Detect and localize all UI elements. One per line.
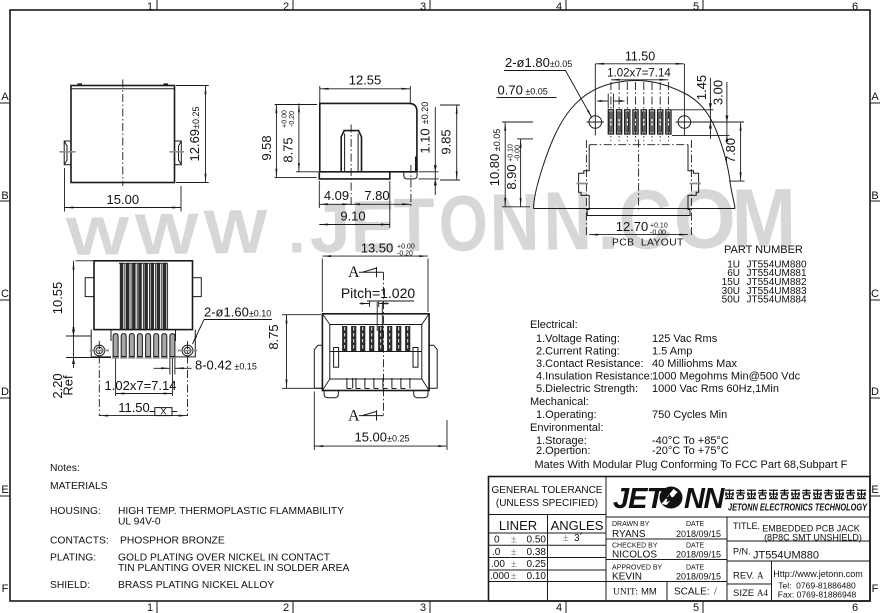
svg-text:8.75: 8.75 <box>266 324 281 349</box>
svg-text:0: 0 <box>494 535 500 546</box>
svg-text:+0.10: +0.10 <box>650 223 668 230</box>
svg-text:40 Milliohms Max: 40 Milliohms Max <box>652 358 737 370</box>
svg-text:TITLE.: TITLE. <box>733 521 760 531</box>
svg-text:Notes:: Notes: <box>50 463 80 474</box>
svg-text:1: 1 <box>147 602 153 613</box>
svg-text:PHOSPHOR BRONZE: PHOSPHOR BRONZE <box>120 536 225 547</box>
svg-text:4: 4 <box>556 1 562 13</box>
svg-text:3: 3 <box>420 602 426 613</box>
svg-text:JT554UM884: JT554UM884 <box>747 294 807 305</box>
svg-text:Mates With Modular Plug Confor: Mates With Modular Plug Conforming To FC… <box>535 459 848 471</box>
svg-text:13.50: 13.50 <box>361 241 394 256</box>
svg-text:4.09: 4.09 <box>324 188 349 203</box>
svg-text:1.Voltage Rating:: 1.Voltage Rating: <box>536 333 620 345</box>
svg-text:.00: .00 <box>491 559 505 570</box>
svg-text:PCB LAYOUT: PCB LAYOUT <box>612 238 684 249</box>
svg-text:D: D <box>1 386 9 398</box>
svg-text:MATERIALS: MATERIALS <box>50 481 108 492</box>
svg-text:0.25: 0.25 <box>527 559 547 570</box>
svg-text:W: W <box>203 196 268 267</box>
svg-text:12.70: 12.70 <box>616 219 649 234</box>
svg-text:-0.00: -0.00 <box>515 145 522 161</box>
svg-text:A4: A4 <box>757 588 768 598</box>
svg-text:+0.00: +0.00 <box>282 110 289 128</box>
svg-text:.0: .0 <box>492 547 501 558</box>
svg-text:Pitch=1.020: Pitch=1.020 <box>341 285 416 301</box>
svg-text:1.Operating:: 1.Operating: <box>536 409 597 421</box>
svg-text:MM: MM <box>641 587 657 598</box>
svg-text:Http://www.jetonn.com: Http://www.jetonn.com <box>773 569 863 579</box>
svg-text:-0.20: -0.20 <box>397 251 413 258</box>
svg-text:12.69±0.25: 12.69±0.25 <box>187 106 202 161</box>
svg-text:O: O <box>438 180 488 269</box>
svg-text:DATE: DATE <box>686 565 704 572</box>
svg-text:1.5 Amp: 1.5 Amp <box>652 346 692 358</box>
svg-text:0.10: 0.10 <box>527 571 547 582</box>
svg-text:11.50: 11.50 <box>625 50 655 64</box>
svg-text:0.50: 0.50 <box>527 535 547 546</box>
svg-text:W: W <box>134 202 199 267</box>
svg-text:50U: 50U <box>722 294 740 305</box>
svg-text:N: N <box>543 174 592 267</box>
svg-text:B: B <box>1 190 8 202</box>
svg-text:9.10: 9.10 <box>340 209 365 224</box>
svg-text:Mechanical:: Mechanical: <box>530 396 589 408</box>
svg-text:A: A <box>757 571 764 581</box>
svg-text:A: A <box>348 264 360 281</box>
svg-text:15.00: 15.00 <box>107 192 140 207</box>
svg-text:1.02x7=7.14: 1.02x7=7.14 <box>607 68 671 80</box>
svg-text:P/N.: P/N. <box>733 547 751 557</box>
svg-text:2.Current Rating:: 2.Current Rating: <box>536 346 620 358</box>
svg-text:/: / <box>714 587 717 598</box>
svg-text:12.55: 12.55 <box>349 73 382 88</box>
svg-text:.000: .000 <box>490 571 510 582</box>
svg-text:3.Contact Resistance:: 3.Contact Resistance: <box>536 358 644 370</box>
svg-text:SIZE: SIZE <box>733 588 754 599</box>
svg-text:1000 Vac Rms 60Hz,1Min: 1000 Vac Rms 60Hz,1Min <box>652 383 779 395</box>
svg-text:±0.05: ±0.05 <box>492 129 502 151</box>
svg-text:7.80: 7.80 <box>723 138 738 163</box>
svg-text:3.00: 3.00 <box>711 80 726 105</box>
svg-text:NICOLOS: NICOLOS <box>612 550 657 561</box>
svg-text:HOUSING:: HOUSING: <box>50 506 101 517</box>
svg-text:A: A <box>871 91 879 103</box>
svg-text:A: A <box>1 91 9 103</box>
svg-text:C: C <box>871 288 879 300</box>
svg-text:9.58: 9.58 <box>259 135 274 160</box>
svg-text:4.Insulation Resistance:: 4.Insulation Resistance: <box>536 371 653 383</box>
svg-text:±0.20: ±0.20 <box>420 102 430 124</box>
svg-text:REV.: REV. <box>733 571 754 582</box>
svg-text:±: ± <box>563 533 569 544</box>
svg-text:6: 6 <box>852 602 858 613</box>
svg-text:3: 3 <box>420 1 426 13</box>
svg-text:Environmental:: Environmental: <box>530 422 603 434</box>
svg-text:-20°C To +75°C: -20°C To +75°C <box>652 445 729 457</box>
svg-text:Ref: Ref <box>61 375 76 396</box>
svg-text:11.50: 11.50 <box>118 400 150 415</box>
svg-text:PART NUMBER: PART NUMBER <box>724 244 803 256</box>
svg-text:GENERAL TOLERANCE: GENERAL TOLERANCE <box>492 485 603 496</box>
svg-text:15.00±0.25: 15.00±0.25 <box>354 430 409 445</box>
svg-text:6: 6 <box>852 1 858 13</box>
svg-text:±: ± <box>511 559 517 570</box>
svg-text:2018/09/15: 2018/09/15 <box>676 529 721 539</box>
svg-text:8.75: 8.75 <box>281 137 296 162</box>
svg-text:2-ø1.80±0.05: 2-ø1.80±0.05 <box>505 55 572 70</box>
svg-text:0.38: 0.38 <box>527 547 547 558</box>
svg-text:(UNLESS SPECIFIED): (UNLESS SPECIFIED) <box>496 498 598 509</box>
svg-text:CONTACTS:: CONTACTS: <box>50 536 109 547</box>
svg-text:LINER: LINER <box>499 518 537 533</box>
svg-text:10.80: 10.80 <box>487 154 502 187</box>
svg-text:3´: 3´ <box>574 532 583 544</box>
svg-text:±: ± <box>511 571 517 582</box>
svg-text:JET: JET <box>613 483 666 515</box>
svg-text:CHECKED BY: CHECKED BY <box>612 543 658 550</box>
svg-text:2.Opertion:: 2.Opertion: <box>536 445 590 457</box>
svg-text:.: . <box>287 194 306 266</box>
svg-text:GOLD PLATING OVER NICKEL IN CO: GOLD PLATING OVER NICKEL IN CONTACT <box>118 553 331 564</box>
svg-text:D: D <box>871 386 879 398</box>
svg-text:2: 2 <box>283 1 289 13</box>
svg-text:HIGH TEMP. THERMOPLASTIC FLAMM: HIGH TEMP. THERMOPLASTIC FLAMMABILITY <box>118 506 344 517</box>
svg-text:2-ø1.60±0.10: 2-ø1.60±0.10 <box>204 305 271 320</box>
svg-text:Fax: 0769-81886948: Fax: 0769-81886948 <box>778 590 857 600</box>
svg-text:1: 1 <box>147 1 153 13</box>
svg-text:JT554UM880: JT554UM880 <box>753 550 819 562</box>
svg-text:8.90: 8.90 <box>504 164 519 189</box>
svg-text:750 Cycles Min: 750 Cycles Min <box>652 409 727 421</box>
svg-text:4: 4 <box>556 602 562 613</box>
svg-text:F: F <box>2 583 9 595</box>
svg-text:1000 Megohms Min@500 Vdc: 1000 Megohms Min@500 Vdc <box>652 371 801 383</box>
svg-text:±: ± <box>511 535 517 546</box>
svg-text:5: 5 <box>693 602 699 613</box>
svg-text:-0.00: -0.00 <box>650 230 666 237</box>
svg-text:X: X <box>160 406 167 417</box>
svg-text:7.80: 7.80 <box>364 188 389 203</box>
svg-text:DRAWN BY: DRAWN BY <box>612 521 650 528</box>
svg-text:+0.10: +0.10 <box>508 144 515 162</box>
svg-text:NN: NN <box>684 483 725 515</box>
svg-text:10.55: 10.55 <box>50 282 65 315</box>
svg-text:(8P8C SMT UNSHIELD): (8P8C SMT UNSHIELD) <box>764 533 862 543</box>
svg-text:2018/09/15: 2018/09/15 <box>676 572 721 582</box>
svg-text:SHIELD:: SHIELD: <box>50 580 90 591</box>
svg-text:1.10: 1.10 <box>418 128 433 153</box>
svg-text:SCALE:: SCALE: <box>674 587 710 598</box>
svg-text:KEVIN: KEVIN <box>612 572 642 583</box>
svg-text:B: B <box>871 190 878 202</box>
svg-text:1.02x7=7.14: 1.02x7=7.14 <box>105 378 177 393</box>
svg-text:1.45: 1.45 <box>694 75 709 100</box>
svg-text:8-0.42 ±0.15: 8-0.42 ±0.15 <box>195 358 257 373</box>
svg-text:APPROVED BY: APPROVED BY <box>612 565 663 572</box>
svg-text:±: ± <box>511 547 517 558</box>
svg-text:UL 94V-0: UL 94V-0 <box>118 517 161 528</box>
svg-text:2: 2 <box>283 602 289 613</box>
svg-text:A: A <box>348 408 360 425</box>
svg-text:UNIT:: UNIT: <box>613 588 638 598</box>
svg-text:BRASS PLATING NICKEL ALLOY: BRASS PLATING NICKEL ALLOY <box>118 580 274 591</box>
svg-text:2018/09/15: 2018/09/15 <box>676 550 721 560</box>
svg-text:9.85: 9.85 <box>439 129 454 154</box>
svg-text:-0.20: -0.20 <box>289 111 296 127</box>
svg-text:TIN PLANTING OVER NICKEL IN SO: TIN PLANTING OVER NICKEL IN SOLDER AREA <box>118 563 349 574</box>
svg-text:Electrical:: Electrical: <box>530 319 578 331</box>
svg-text:F: F <box>872 583 879 595</box>
svg-text:E: E <box>871 484 878 496</box>
svg-text:E: E <box>1 484 8 496</box>
svg-text:PLATING:: PLATING: <box>50 553 96 564</box>
svg-text:0.70 ±0.05: 0.70 ±0.05 <box>498 83 548 98</box>
svg-text:W: W <box>65 206 130 267</box>
svg-text:+0.00: +0.00 <box>397 244 415 251</box>
svg-text:DATE: DATE <box>686 543 704 550</box>
svg-text:DATE: DATE <box>686 521 704 528</box>
svg-text:ANGLES: ANGLES <box>551 518 604 533</box>
svg-text:125 Vac Rms: 125 Vac Rms <box>652 333 718 345</box>
svg-text:JETONN ELECTRONICS TECHNOLOGY: JETONN ELECTRONICS TECHNOLOGY <box>728 502 868 514</box>
svg-text:C: C <box>1 288 9 300</box>
svg-text:RYANS: RYANS <box>612 529 646 540</box>
svg-text:5.Dielectric Strength:: 5.Dielectric Strength: <box>536 383 638 395</box>
svg-text:5: 5 <box>693 1 699 13</box>
